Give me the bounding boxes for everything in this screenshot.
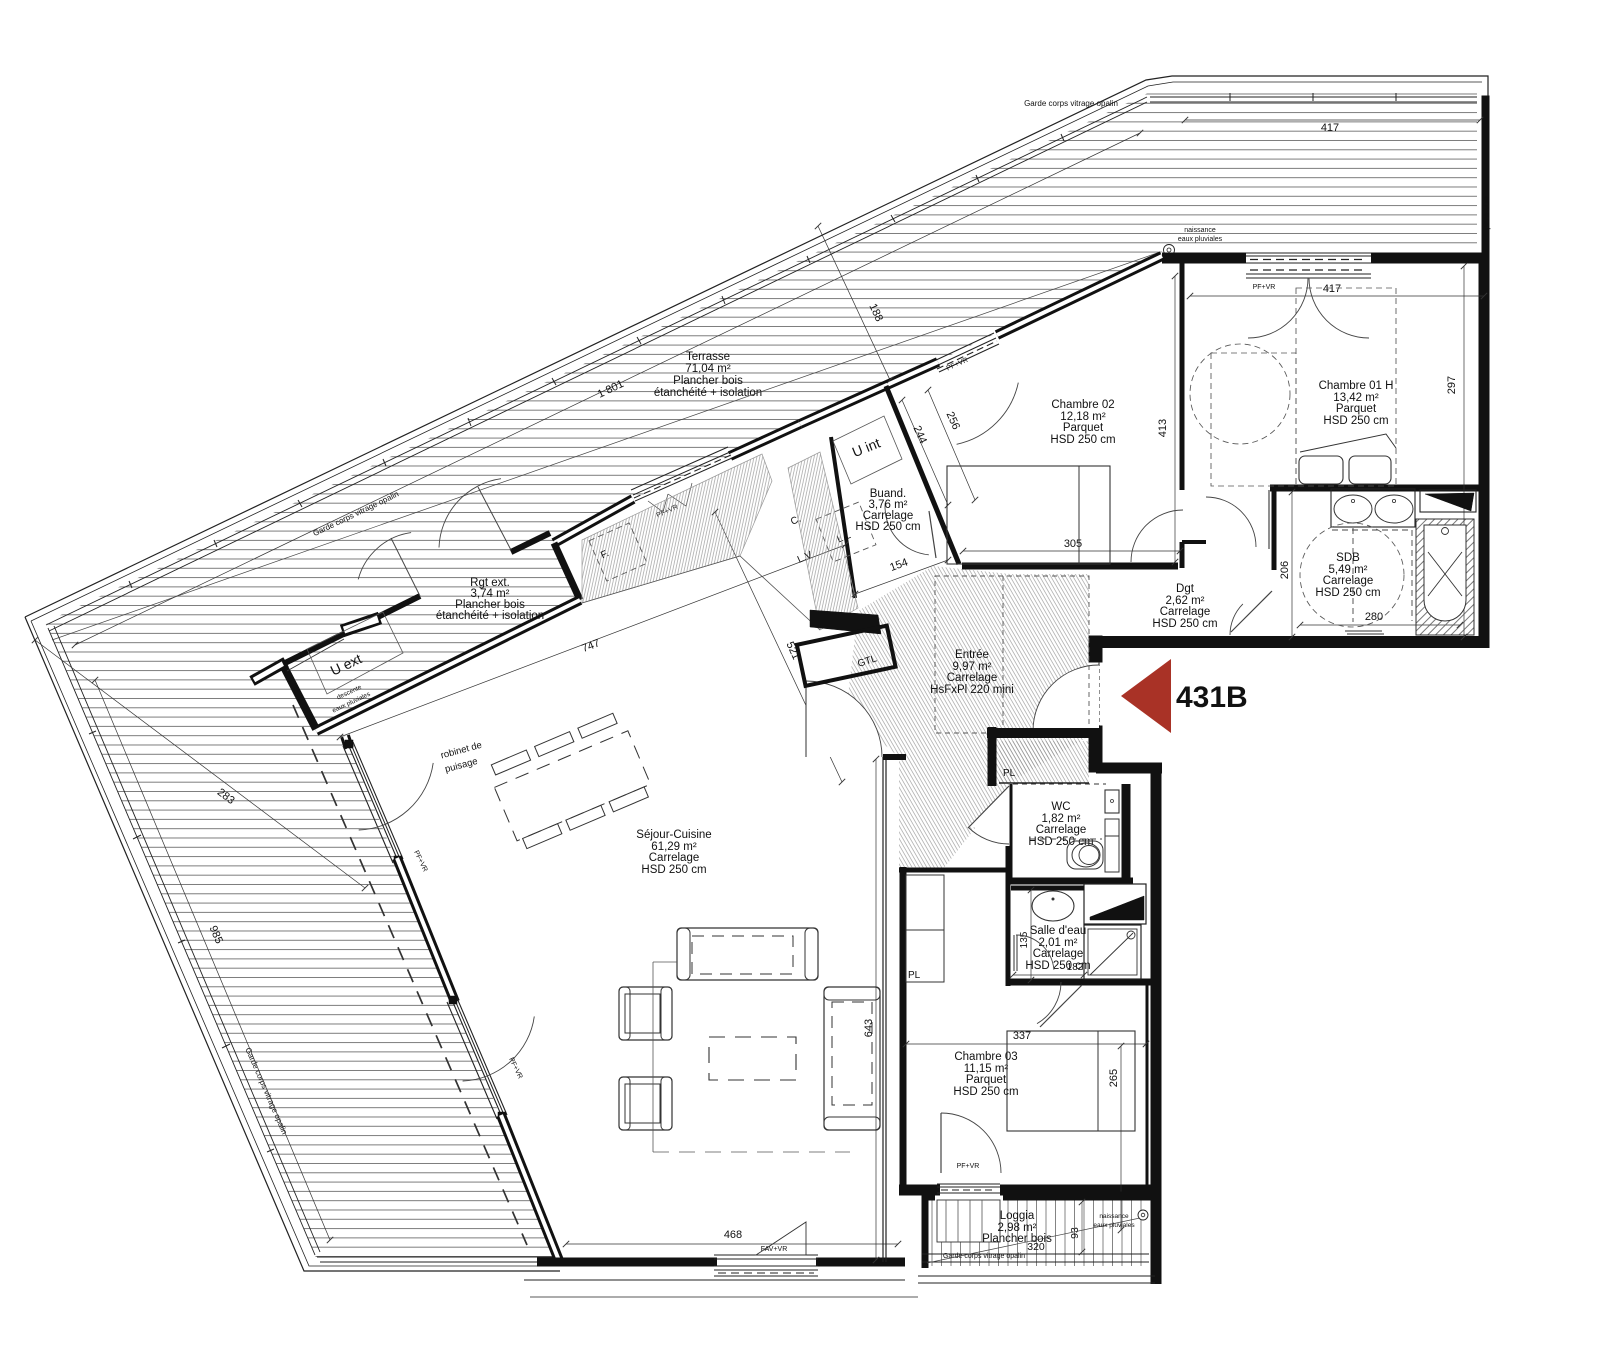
svg-text:Parquet: Parquet	[966, 1074, 1007, 1086]
svg-text:FAV+VR: FAV+VR	[761, 1246, 788, 1253]
svg-text:PL: PL	[908, 970, 921, 981]
svg-text:Dgt: Dgt	[1176, 583, 1195, 595]
svg-text:Séjour-Cuisine: Séjour-Cuisine	[636, 829, 711, 841]
svg-text:337: 337	[1013, 1030, 1031, 1042]
svg-text:Chambre 03: Chambre 03	[954, 1051, 1017, 1063]
svg-text:417: 417	[1323, 283, 1341, 295]
svg-text:Salle d'eau: Salle d'eau	[1030, 925, 1087, 937]
svg-text:135: 135	[1019, 931, 1030, 948]
svg-text:naissance: naissance	[1184, 227, 1216, 234]
svg-text:Carrelage: Carrelage	[1036, 824, 1087, 836]
svg-text:Parquet: Parquet	[1336, 403, 1377, 415]
svg-text:HSD 250 cm: HSD 250 cm	[1323, 415, 1388, 427]
svg-text:robinet de: robinet de	[440, 740, 484, 762]
svg-text:Garde corps vitrage opalin: Garde corps vitrage opalin	[1024, 99, 1118, 108]
svg-text:468: 468	[724, 1229, 742, 1241]
svg-text:Carrelage: Carrelage	[1033, 948, 1084, 960]
svg-text:PF+VR: PF+VR	[1253, 284, 1276, 291]
svg-text:WC: WC	[1051, 801, 1070, 813]
svg-text:320: 320	[1027, 1241, 1045, 1253]
svg-text:HSD 250 cm: HSD 250 cm	[641, 864, 706, 876]
svg-text:Chambre 01 H: Chambre 01 H	[1319, 380, 1394, 392]
svg-text:Loggia: Loggia	[1000, 1210, 1035, 1222]
svg-text:Parquet: Parquet	[1063, 422, 1104, 434]
svg-text:Garde corps vitrage opalin: Garde corps vitrage opalin	[943, 1253, 1025, 1260]
svg-text:71,04 m²: 71,04 m²	[685, 363, 731, 375]
svg-text:Plancher bois: Plancher bois	[673, 375, 743, 387]
svg-text:HSD 250 cm: HSD 250 cm	[1050, 434, 1115, 446]
svg-text:Chambre 02: Chambre 02	[1051, 399, 1114, 411]
svg-text:HSD 250 cm: HSD 250 cm	[1315, 587, 1380, 599]
svg-text:étanchéité + isolation: étanchéité + isolation	[436, 610, 544, 622]
svg-text:PL: PL	[1003, 768, 1016, 779]
svg-text:182: 182	[1067, 962, 1084, 973]
svg-text:256: 256	[944, 410, 962, 432]
svg-text:PF+VR: PF+VR	[957, 1163, 980, 1170]
svg-text:280: 280	[1365, 611, 1383, 623]
svg-text:747: 747	[580, 637, 601, 655]
svg-text:Carrelage: Carrelage	[1160, 606, 1211, 618]
svg-text:HSD 250 cm: HSD 250 cm	[953, 1086, 1018, 1098]
svg-text:Entrée: Entrée	[955, 649, 989, 661]
svg-text:PF+VR: PF+VR	[507, 1057, 523, 1081]
svg-text:413: 413	[1157, 419, 1169, 437]
svg-text:HSD 250 cm: HSD 250 cm	[855, 521, 920, 533]
svg-text:417: 417	[1321, 122, 1339, 134]
svg-text:643: 643	[863, 1019, 875, 1037]
svg-text:naissance: naissance	[1099, 1213, 1129, 1220]
svg-text:HsFxPl 220 mini: HsFxPl 220 mini	[930, 684, 1014, 696]
svg-text:eaux pluviales: eaux pluviales	[1093, 1222, 1135, 1229]
svg-text:431B: 431B	[1176, 681, 1248, 714]
svg-text:297: 297	[1446, 376, 1458, 394]
svg-text:Carrelage: Carrelage	[649, 852, 700, 864]
svg-text:Terrasse: Terrasse	[686, 351, 730, 363]
svg-text:PF+VR: PF+VR	[412, 850, 428, 874]
svg-text:Carrelage: Carrelage	[947, 672, 998, 684]
svg-text:U int: U int	[850, 435, 883, 461]
svg-text:SDB: SDB	[1336, 552, 1360, 564]
svg-text:HSD 250 cm: HSD 250 cm	[1028, 836, 1093, 848]
svg-text:HSD 250 cm: HSD 250 cm	[1152, 618, 1217, 630]
svg-text:206: 206	[1279, 561, 1291, 579]
svg-text:265: 265	[1108, 1069, 1120, 1087]
svg-text:pare-vue: pare-vue	[1481, 196, 1491, 230]
svg-text:244: 244	[911, 424, 929, 446]
svg-text:eaux pluviales: eaux pluviales	[1178, 236, 1223, 243]
svg-text:Carrelage: Carrelage	[1323, 575, 1374, 587]
svg-text:154: 154	[888, 556, 909, 574]
